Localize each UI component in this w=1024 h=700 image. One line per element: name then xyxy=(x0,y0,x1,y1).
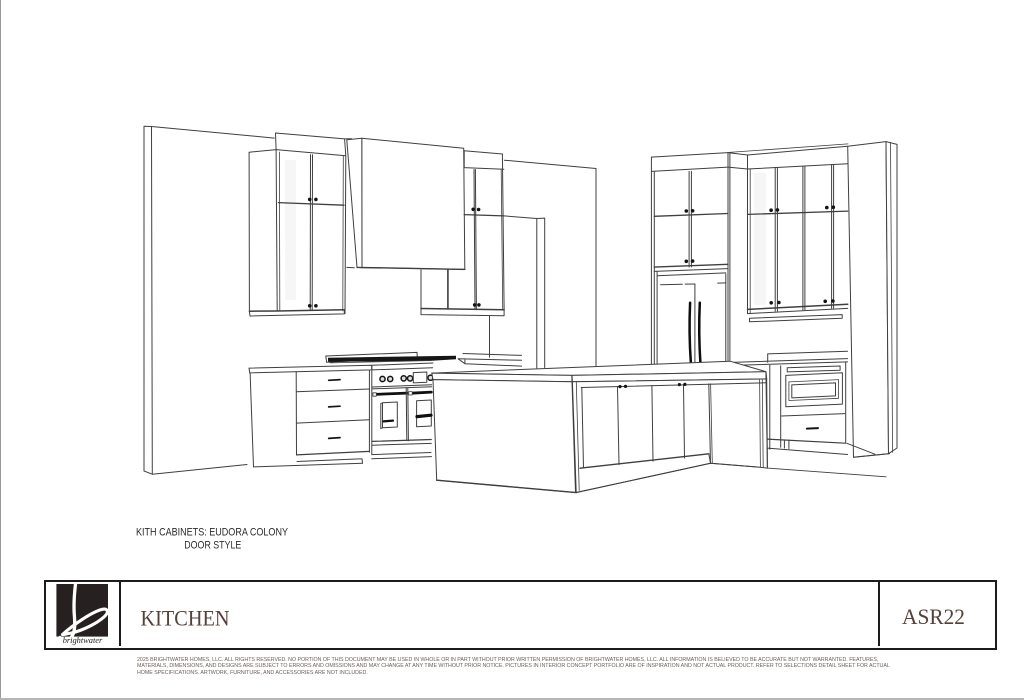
svg-text:ASR22: ASR22 xyxy=(902,604,965,629)
svg-text:KITCHEN: KITCHEN xyxy=(141,606,230,631)
